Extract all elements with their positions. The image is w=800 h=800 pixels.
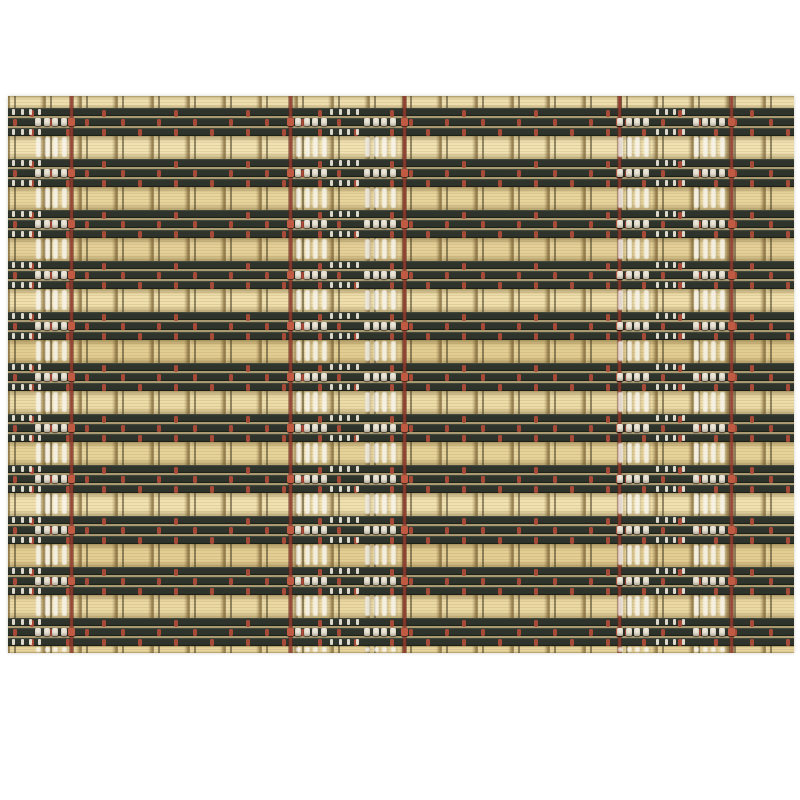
white-stitch-bead xyxy=(643,118,649,126)
white-stitch-bead xyxy=(634,373,640,381)
red-thread-bead xyxy=(287,322,294,330)
red-stitch-dot xyxy=(570,588,574,595)
white-thread-tuft xyxy=(36,188,41,208)
red-stitch-dot xyxy=(13,119,17,126)
white-stitch-bead xyxy=(693,373,699,381)
red-stitch-dot xyxy=(462,263,466,270)
white-stitch-tick xyxy=(682,231,685,237)
white-stitch-tick xyxy=(330,211,333,217)
white-stitch-tick xyxy=(330,466,333,472)
white-stitch-tick xyxy=(356,231,359,237)
bamboo-tan-strip xyxy=(8,544,794,567)
red-thread-bead xyxy=(401,628,408,636)
red-stitch-dot xyxy=(318,384,322,391)
white-thread-tuft xyxy=(703,545,708,565)
white-stitch-tick xyxy=(29,568,32,574)
red-stitch-dot xyxy=(462,588,466,595)
white-stitch-bead xyxy=(643,628,649,636)
red-stitch-dot xyxy=(13,323,17,330)
white-stitch-tick xyxy=(347,588,350,594)
white-stitch-tick xyxy=(38,435,41,441)
red-stitch-dot xyxy=(661,221,665,228)
white-stitch-bead xyxy=(634,628,640,636)
white-thread-tuft xyxy=(374,494,379,514)
white-stitch-bead xyxy=(61,271,67,279)
white-thread-tuft xyxy=(53,545,58,565)
white-stitch-bead xyxy=(643,424,649,432)
white-thread-tuft xyxy=(703,239,708,259)
white-thread-tuft xyxy=(374,443,379,463)
white-stitch-tick xyxy=(21,537,24,543)
red-stitch-dot xyxy=(426,639,430,646)
red-stitch-dot xyxy=(462,639,466,646)
red-stitch-dot xyxy=(589,425,593,432)
white-stitch-tick xyxy=(347,537,350,543)
red-stitch-dot xyxy=(606,212,610,219)
red-stitch-dot xyxy=(445,425,449,432)
red-stitch-dot xyxy=(769,119,773,126)
white-stitch-tick xyxy=(29,364,32,370)
red-stitch-dot xyxy=(517,425,521,432)
white-stitch-tick xyxy=(347,364,350,370)
white-stitch-tick xyxy=(21,384,24,390)
white-thread-tuft xyxy=(627,596,632,616)
red-stitch-dot xyxy=(606,639,610,646)
red-stitch-dot xyxy=(85,476,89,483)
white-stitch-tick xyxy=(330,639,333,645)
red-stitch-dot xyxy=(318,212,322,219)
red-stitch-dot xyxy=(517,221,521,228)
red-stitch-dot xyxy=(157,425,161,432)
white-stitch-tick xyxy=(12,435,15,441)
red-stitch-dot xyxy=(570,231,574,238)
red-stitch-dot xyxy=(642,282,646,289)
white-stitch-bead xyxy=(364,322,370,330)
red-stitch-dot xyxy=(714,588,718,595)
red-stitch-dot xyxy=(318,588,322,595)
white-stitch-bead xyxy=(373,169,379,177)
white-stitch-tick xyxy=(330,619,333,625)
red-stitch-dot xyxy=(553,272,557,279)
white-stitch-tick xyxy=(673,486,676,492)
red-stitch-dot xyxy=(786,384,790,391)
red-stitch-dot xyxy=(174,365,178,372)
white-stitch-bead xyxy=(61,475,67,483)
red-stitch-dot xyxy=(337,629,341,636)
red-thread-bead xyxy=(68,475,75,483)
white-stitch-bead xyxy=(295,628,301,636)
red-stitch-dot xyxy=(750,467,754,474)
white-stitch-bead xyxy=(52,322,58,330)
white-stitch-bead xyxy=(364,169,370,177)
white-stitch-tick xyxy=(12,333,15,339)
white-stitch-bead xyxy=(44,628,50,636)
white-stitch-bead xyxy=(295,220,301,228)
red-stitch-dot xyxy=(481,272,485,279)
white-thread-tuft xyxy=(322,239,327,259)
white-stitch-bead xyxy=(304,169,310,177)
red-stitch-dot xyxy=(102,569,106,576)
red-stitch-dot xyxy=(786,435,790,442)
red-thread-bead xyxy=(287,169,294,177)
red-stitch-dot xyxy=(534,435,538,442)
red-stitch-dot xyxy=(246,416,250,423)
red-stitch-dot xyxy=(661,119,665,126)
red-stitch-dot xyxy=(750,263,754,270)
white-thread-tuft xyxy=(305,494,310,514)
white-stitch-tick xyxy=(330,486,333,492)
white-thread-tuft xyxy=(635,443,640,463)
white-stitch-tick xyxy=(38,619,41,625)
white-thread-tuft xyxy=(711,494,716,514)
white-thread-tuft xyxy=(374,290,379,310)
white-stitch-bead xyxy=(693,169,699,177)
red-stitch-dot xyxy=(642,435,646,442)
white-thread-tuft xyxy=(365,137,370,157)
red-stitch-dot xyxy=(570,282,574,289)
white-stitch-bead xyxy=(693,322,699,330)
white-thread-tuft xyxy=(711,341,716,361)
white-stitch-tick xyxy=(673,364,676,370)
red-stitch-dot xyxy=(606,314,610,321)
red-stitch-dot xyxy=(786,129,790,136)
white-stitch-tick xyxy=(356,517,359,523)
red-stitch-dot xyxy=(750,416,754,423)
red-stitch-dot xyxy=(390,282,394,289)
white-thread-tuft xyxy=(374,392,379,412)
red-stitch-dot xyxy=(102,467,106,474)
white-stitch-bead xyxy=(626,322,632,330)
white-stitch-bead xyxy=(321,577,327,585)
white-stitch-tick xyxy=(347,180,350,186)
red-stitch-dot xyxy=(462,384,466,391)
white-stitch-bead xyxy=(617,322,623,330)
white-stitch-bead xyxy=(693,475,699,483)
red-stitch-dot xyxy=(462,620,466,627)
red-stitch-dot xyxy=(426,282,430,289)
red-stitch-dot xyxy=(517,272,521,279)
red-stitch-dot xyxy=(157,170,161,177)
red-stitch-dot xyxy=(174,263,178,270)
red-stitch-dot xyxy=(445,170,449,177)
red-thread-bead xyxy=(401,526,408,534)
white-stitch-bead xyxy=(390,373,396,381)
white-stitch-tick xyxy=(12,517,15,523)
white-stitch-bead xyxy=(295,118,301,126)
white-thread-tuft xyxy=(365,239,370,259)
red-stitch-dot xyxy=(265,272,269,279)
white-stitch-bead xyxy=(643,322,649,330)
white-stitch-tick xyxy=(12,313,15,319)
red-thread-bead xyxy=(728,322,735,330)
white-stitch-bead xyxy=(295,424,301,432)
red-stitch-dot xyxy=(534,518,538,525)
red-stitch-dot xyxy=(750,282,754,289)
white-stitch-tick xyxy=(38,537,41,543)
red-stitch-dot xyxy=(661,527,665,534)
white-stitch-tick xyxy=(38,588,41,594)
white-thread-tuft xyxy=(36,647,41,652)
white-stitch-tick xyxy=(656,211,659,217)
red-stitch-dot xyxy=(102,161,106,168)
red-thread-bead xyxy=(68,424,75,432)
red-stitch-dot xyxy=(426,435,430,442)
white-stitch-tick xyxy=(339,160,342,166)
white-thread-tuft xyxy=(627,137,632,157)
white-stitch-tick xyxy=(665,211,668,217)
white-stitch-bead xyxy=(626,118,632,126)
white-stitch-tick xyxy=(665,588,668,594)
white-thread-tuft xyxy=(374,137,379,157)
red-stitch-dot xyxy=(589,272,593,279)
white-thread-tuft xyxy=(62,239,67,259)
white-stitch-bead xyxy=(61,628,67,636)
white-stitch-tick xyxy=(673,384,676,390)
white-thread-tuft xyxy=(627,341,632,361)
red-stitch-dot xyxy=(102,537,106,544)
white-thread-tuft xyxy=(694,239,699,259)
white-stitch-tick xyxy=(682,313,685,319)
red-stitch-dot xyxy=(102,416,106,423)
white-thread-tuft xyxy=(365,545,370,565)
white-thread-tuft xyxy=(62,545,67,565)
white-stitch-tick xyxy=(339,109,342,115)
white-stitch-bead xyxy=(52,169,58,177)
white-stitch-tick xyxy=(38,486,41,492)
red-stitch-dot xyxy=(282,282,286,289)
white-thread-tuft xyxy=(45,290,50,310)
white-stitch-bead xyxy=(626,169,632,177)
red-stitch-dot xyxy=(193,119,197,126)
red-stitch-dot xyxy=(210,384,214,391)
white-thread-tuft xyxy=(391,239,396,259)
white-stitch-tick xyxy=(21,568,24,574)
white-stitch-tick xyxy=(682,415,685,421)
white-stitch-tick xyxy=(665,313,668,319)
white-thread-tuft xyxy=(365,341,370,361)
white-stitch-bead xyxy=(617,220,623,228)
white-stitch-bead xyxy=(381,169,387,177)
white-thread-tuft xyxy=(711,443,716,463)
red-stitch-dot xyxy=(390,231,394,238)
red-thread-bead xyxy=(401,169,408,177)
white-thread-tuft xyxy=(720,443,725,463)
red-thread-bead xyxy=(401,322,408,330)
white-stitch-tick xyxy=(682,639,685,645)
white-stitch-tick xyxy=(330,109,333,115)
white-stitch-tick xyxy=(682,109,685,115)
red-stitch-dot xyxy=(13,170,17,177)
white-stitch-bead xyxy=(710,169,716,177)
red-stitch-dot xyxy=(390,365,394,372)
white-stitch-tick xyxy=(356,333,359,339)
white-thread-tuft xyxy=(53,341,58,361)
red-stitch-dot xyxy=(390,129,394,136)
red-stitch-dot xyxy=(390,588,394,595)
red-stitch-dot xyxy=(318,129,322,136)
red-stitch-dot xyxy=(481,119,485,126)
red-stitch-dot xyxy=(661,629,665,636)
white-stitch-tick xyxy=(673,129,676,135)
white-stitch-tick xyxy=(12,211,15,217)
red-stitch-dot xyxy=(282,129,286,136)
red-stitch-dot xyxy=(210,180,214,187)
white-stitch-bead xyxy=(321,169,327,177)
white-stitch-tick xyxy=(21,211,24,217)
white-stitch-bead xyxy=(35,424,41,432)
red-stitch-dot xyxy=(750,314,754,321)
red-stitch-dot xyxy=(769,374,773,381)
red-stitch-dot xyxy=(445,323,449,330)
red-stitch-dot xyxy=(121,272,125,279)
red-thread-bead xyxy=(68,118,75,126)
white-thread-tuft xyxy=(644,137,649,157)
white-thread-tuft xyxy=(635,239,640,259)
white-thread-tuft xyxy=(391,341,396,361)
red-stitch-dot xyxy=(769,578,773,585)
white-thread-tuft xyxy=(36,443,41,463)
red-stitch-dot xyxy=(174,212,178,219)
white-stitch-tick xyxy=(21,639,24,645)
red-stitch-dot xyxy=(606,569,610,576)
red-stitch-dot xyxy=(138,282,142,289)
red-stitch-dot xyxy=(462,467,466,474)
white-thread-tuft xyxy=(627,290,632,310)
white-thread-tuft xyxy=(45,443,50,463)
white-stitch-bead xyxy=(61,322,67,330)
red-stitch-dot xyxy=(534,212,538,219)
white-stitch-bead xyxy=(381,475,387,483)
white-stitch-tick xyxy=(339,537,342,543)
white-thread-tuft xyxy=(720,137,725,157)
white-stitch-bead xyxy=(634,169,640,177)
white-thread-tuft xyxy=(703,494,708,514)
white-stitch-tick xyxy=(21,486,24,492)
white-thread-tuft xyxy=(322,647,327,652)
red-thread-bead xyxy=(287,424,294,432)
white-stitch-tick xyxy=(12,384,15,390)
red-stitch-dot xyxy=(282,486,286,493)
white-stitch-tick xyxy=(38,568,41,574)
white-stitch-bead xyxy=(693,577,699,585)
white-stitch-bead xyxy=(44,322,50,330)
red-stitch-dot xyxy=(570,435,574,442)
white-stitch-tick xyxy=(656,639,659,645)
white-thread-tuft xyxy=(322,290,327,310)
white-stitch-tick xyxy=(339,415,342,421)
white-stitch-tick xyxy=(330,537,333,543)
red-stitch-dot xyxy=(138,588,142,595)
white-stitch-tick xyxy=(665,568,668,574)
red-stitch-dot xyxy=(85,578,89,585)
white-stitch-bead xyxy=(710,628,716,636)
white-stitch-tick xyxy=(29,333,32,339)
white-thread-tuft xyxy=(618,341,623,361)
red-stitch-dot xyxy=(409,323,413,330)
red-stitch-dot xyxy=(337,527,341,534)
red-stitch-dot xyxy=(337,272,341,279)
red-stitch-dot xyxy=(121,476,125,483)
white-stitch-tick xyxy=(339,435,342,441)
white-thread-tuft xyxy=(644,341,649,361)
white-thread-tuft xyxy=(53,647,58,652)
white-stitch-tick xyxy=(12,415,15,421)
white-thread-tuft xyxy=(720,392,725,412)
white-stitch-tick xyxy=(339,262,342,268)
white-stitch-tick xyxy=(29,262,32,268)
bamboo-mat xyxy=(8,96,794,653)
white-thread-tuft xyxy=(296,188,301,208)
white-stitch-tick xyxy=(656,517,659,523)
red-thread-bead xyxy=(68,577,75,585)
red-stitch-dot xyxy=(390,110,394,117)
red-stitch-dot xyxy=(409,170,413,177)
red-stitch-dot xyxy=(193,425,197,432)
red-stitch-dot xyxy=(390,639,394,646)
white-thread-tuft xyxy=(53,443,58,463)
white-thread-tuft xyxy=(45,647,50,652)
white-stitch-bead xyxy=(295,322,301,330)
white-thread-tuft xyxy=(296,494,301,514)
red-stitch-dot xyxy=(409,476,413,483)
red-stitch-dot xyxy=(786,588,790,595)
white-stitch-bead xyxy=(295,271,301,279)
red-stitch-dot xyxy=(174,518,178,525)
white-stitch-bead xyxy=(364,118,370,126)
white-thread-tuft xyxy=(322,494,327,514)
red-stitch-dot xyxy=(318,333,322,340)
white-stitch-tick xyxy=(347,568,350,574)
white-thread-tuft xyxy=(644,392,649,412)
red-stitch-dot xyxy=(282,180,286,187)
red-stitch-dot xyxy=(409,578,413,585)
white-stitch-tick xyxy=(38,466,41,472)
white-stitch-tick xyxy=(330,568,333,574)
white-stitch-bead xyxy=(321,424,327,432)
white-thread-tuft xyxy=(711,545,716,565)
white-stitch-bead xyxy=(702,424,708,432)
white-stitch-tick xyxy=(682,180,685,186)
red-stitch-dot xyxy=(229,629,233,636)
red-stitch-dot xyxy=(661,578,665,585)
white-thread-tuft xyxy=(382,290,387,310)
red-stitch-dot xyxy=(318,639,322,646)
white-thread-tuft xyxy=(703,290,708,310)
white-thread-tuft xyxy=(305,596,310,616)
white-stitch-bead xyxy=(719,628,725,636)
red-stitch-dot xyxy=(246,180,250,187)
white-stitch-bead xyxy=(364,577,370,585)
white-stitch-bead xyxy=(381,271,387,279)
red-stitch-dot xyxy=(138,486,142,493)
red-stitch-dot xyxy=(445,272,449,279)
white-stitch-bead xyxy=(710,373,716,381)
red-stitch-dot xyxy=(750,384,754,391)
red-stitch-dot xyxy=(174,129,178,136)
bamboo-tan-strip xyxy=(8,391,794,414)
red-stitch-dot xyxy=(534,282,538,289)
white-stitch-bead xyxy=(390,424,396,432)
white-stitch-tick xyxy=(330,588,333,594)
white-stitch-tick xyxy=(330,364,333,370)
red-stitch-dot xyxy=(462,416,466,423)
white-stitch-tick xyxy=(673,262,676,268)
white-thread-tuft xyxy=(627,239,632,259)
red-stitch-dot xyxy=(462,569,466,576)
white-stitch-tick xyxy=(656,384,659,390)
white-thread-tuft xyxy=(365,290,370,310)
white-stitch-bead xyxy=(693,118,699,126)
